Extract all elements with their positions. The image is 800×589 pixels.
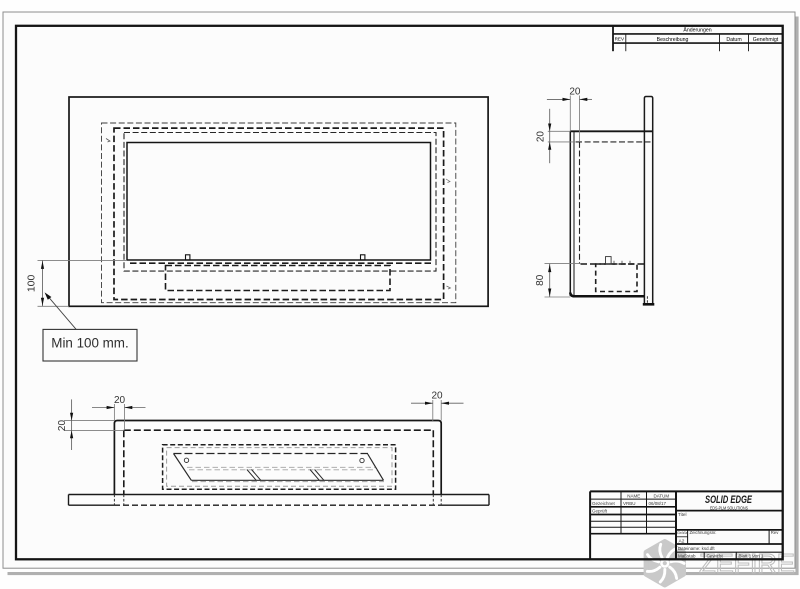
svg-text:Änderungen: Änderungen (683, 27, 711, 34)
svg-text:Zeichnungsnr.: Zeichnungsnr. (690, 530, 717, 535)
svg-text:Titel: Titel (678, 512, 687, 517)
svg-text:Blatt 1 von 1: Blatt 1 von 1 (739, 554, 765, 559)
svg-text:20: 20 (431, 390, 443, 401)
svg-text:NAME: NAME (627, 494, 640, 499)
svg-text:EDS-PLM SOLUTIONS: EDS-PLM SOLUTIONS (710, 505, 748, 510)
svg-text:DATUM: DATUM (653, 494, 669, 499)
svg-text:Min 100 mm.: Min 100 mm. (51, 336, 128, 351)
svg-text:80: 80 (535, 274, 546, 286)
svg-text:VRBU: VRBU (623, 501, 636, 506)
svg-text:20: 20 (57, 420, 68, 432)
svg-text:Größe: Größe (677, 530, 688, 535)
svg-text:Gewicht: Gewicht (707, 554, 724, 559)
svg-text:Datum: Datum (726, 37, 741, 43)
svg-text:06/08/17: 06/08/17 (649, 501, 667, 506)
svg-text:100: 100 (26, 274, 38, 292)
svg-text:Beschreibung: Beschreibung (657, 37, 689, 43)
svg-text:A2: A2 (679, 538, 685, 544)
svg-text:Maßstab: Maßstab (678, 554, 696, 559)
svg-text:Gezeichnet: Gezeichnet (592, 501, 616, 506)
svg-text:20: 20 (569, 86, 581, 97)
svg-text:Genehmigt: Genehmigt (753, 37, 779, 43)
svg-text:SOLID EDGE: SOLID EDGE (705, 494, 753, 506)
svg-text:Rev: Rev (771, 530, 779, 535)
svg-text:20: 20 (536, 131, 547, 143)
svg-text:Geprüft: Geprüft (592, 509, 608, 514)
svg-text:20: 20 (114, 395, 126, 406)
svg-text:REV: REV (615, 37, 625, 42)
svg-text:Dateiname: ksd.dft: Dateiname: ksd.dft (678, 546, 715, 551)
